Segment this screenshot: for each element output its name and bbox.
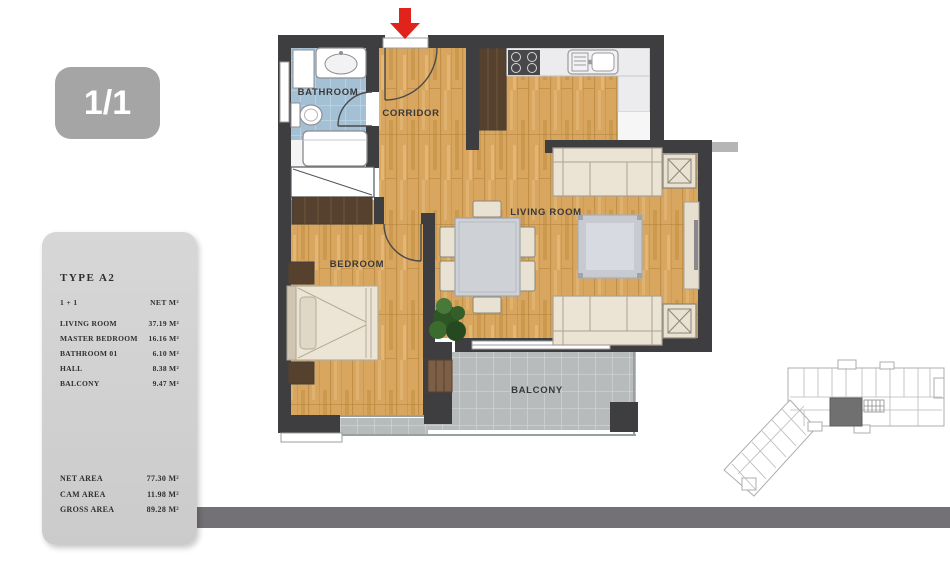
washing-machine (303, 131, 367, 166)
bottom-divider-bar (195, 507, 950, 528)
site-plan-unit-highlight[interactable] (830, 398, 862, 426)
unit-type-title: TYPE A2 (60, 272, 179, 284)
balcony-label: BALCONY (511, 385, 563, 396)
bathroom-label: BATHROOM (298, 87, 359, 98)
coffee-table-rug (578, 215, 642, 278)
balcony-bench (428, 360, 452, 392)
net-column-header: NET M² (150, 298, 179, 307)
unit-layout-type: 1 + 1 (60, 298, 78, 307)
area-totals-list: NET AREA 77.30 M² CAM AREA 11.98 M² GROS… (60, 471, 179, 518)
area-row: LIVING ROOM 37.19 M² (60, 316, 179, 331)
shaft (291, 167, 374, 197)
bathroom-sink (316, 48, 366, 78)
unit-info-panel: TYPE A2 1 + 1 NET M² LIVING ROOM 37.19 M… (42, 232, 197, 545)
bed (287, 286, 378, 360)
total-row: NET AREA 77.30 M² (60, 471, 179, 487)
area-row: MASTER BEDROOM 16.16 M² (60, 331, 179, 346)
area-row: BATHROOM 01 6.10 M² (60, 346, 179, 361)
corridor-label: CORRIDOR (382, 108, 439, 119)
sofa-bottom (553, 296, 662, 345)
nightstand-bottom (288, 362, 314, 384)
tv-console (684, 202, 699, 289)
total-row: GROSS AREA 89.28 M² (60, 502, 179, 518)
site-plan-thumbnail[interactable] (712, 352, 950, 502)
shower-tray (293, 50, 314, 88)
exterior-wall-stub (712, 142, 738, 152)
wardrobe (292, 197, 372, 224)
entrance-arrow-icon (390, 8, 420, 39)
page-indicator-badge: 1/1 (55, 67, 160, 139)
stove (508, 50, 540, 75)
bedroom-label: BEDROOM (330, 259, 385, 270)
total-row: CAM AREA 11.98 M² (60, 487, 179, 503)
area-row: HALL 8.38 M² (60, 361, 179, 376)
sofa-top (553, 148, 662, 196)
toilet (291, 103, 322, 127)
nightstand-top (288, 262, 314, 284)
kitchen-sink (568, 50, 618, 74)
side-table-bottom (663, 304, 696, 338)
floor-plan-drawing: BATHROOM CORRIDOR BEDROOM LIVING ROOM BA… (260, 0, 750, 460)
side-table-top (663, 154, 696, 188)
unit-layout-row: 1 + 1 NET M² (60, 298, 179, 307)
floor-plan-page: 1/1 TYPE A2 1 + 1 NET M² LIVING ROOM 37.… (0, 0, 950, 566)
living-room-label: LIVING ROOM (510, 207, 582, 218)
kitchen-tall-cabinet (479, 48, 506, 130)
room-area-list: LIVING ROOM 37.19 M² MASTER BEDROOM 16.1… (60, 316, 179, 391)
area-row: BALCONY 9.47 M² (60, 376, 179, 391)
page-indicator-text: 1/1 (84, 84, 131, 123)
